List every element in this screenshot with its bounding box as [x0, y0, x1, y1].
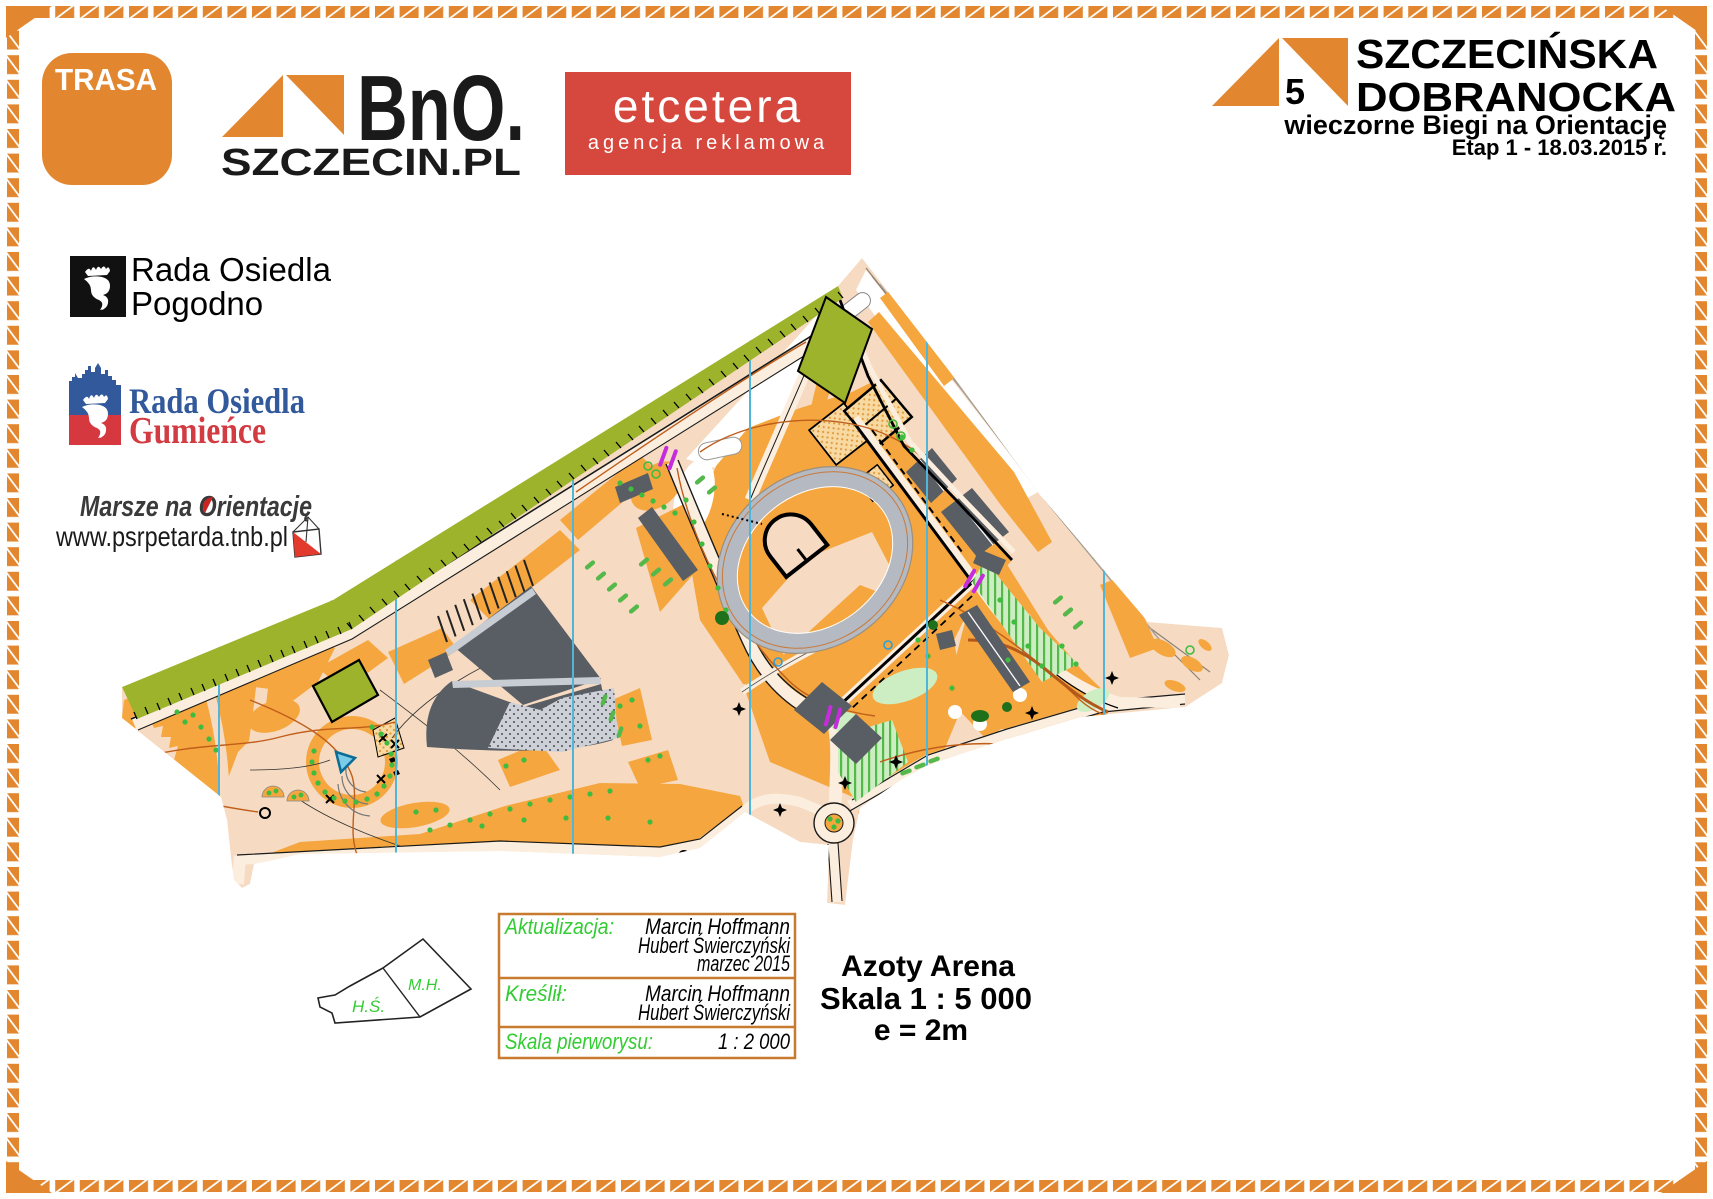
svg-text:Azoty Arena: Azoty Arena: [841, 950, 1015, 983]
svg-text:e = 2m: e = 2m: [874, 1014, 968, 1047]
svg-text:Skala pierworysu:: Skala pierworysu:: [505, 1029, 653, 1054]
svg-text:H.Ś.: H.Ś.: [352, 997, 385, 1016]
svg-text:M.H.: M.H.: [408, 977, 442, 994]
svg-text:Marsze na Orientację: Marsze na Orientację: [80, 491, 312, 523]
svg-text:etcetera: etcetera: [613, 80, 803, 132]
svg-text:SZCZECIN.PL: SZCZECIN.PL: [221, 142, 521, 184]
svg-text:TRASA: TRASA: [55, 62, 157, 97]
svg-text:www.psrpetarda.tnb.pl: www.psrpetarda.tnb.pl: [55, 521, 288, 552]
svg-text:Gumieńce: Gumieńce: [129, 410, 266, 452]
svg-text:Hubert Świerczyński: Hubert Świerczyński: [638, 1000, 791, 1025]
svg-text:5: 5: [1285, 71, 1305, 112]
svg-text:SZCZECIŃSKA: SZCZECIŃSKA: [1356, 31, 1658, 77]
svg-text:Etap 1 - 18.03.2015 r.: Etap 1 - 18.03.2015 r.: [1452, 135, 1667, 160]
svg-text:marzec 2015: marzec 2015: [697, 951, 791, 976]
svg-text:Rada Osiedla: Rada Osiedla: [131, 251, 332, 288]
svg-text:1 : 2 000: 1 : 2 000: [718, 1029, 791, 1054]
svg-text:agencja reklamowa: agencja reklamowa: [588, 132, 828, 154]
svg-text:Skala 1 : 5 000: Skala 1 : 5 000: [820, 981, 1032, 1016]
svg-text:Aktualizacja:: Aktualizacja:: [503, 914, 614, 939]
svg-text:Pogodno: Pogodno: [131, 285, 263, 322]
svg-text:Kreślił:: Kreślił:: [505, 981, 567, 1006]
